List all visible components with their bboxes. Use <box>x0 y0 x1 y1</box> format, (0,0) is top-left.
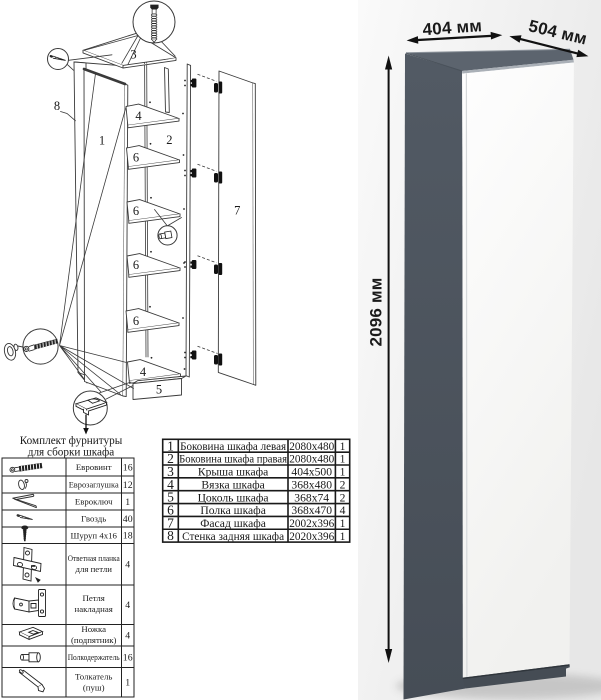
svg-text:Фасад шкафа: Фасад шкафа <box>200 517 266 530</box>
svg-text:2: 2 <box>340 491 346 504</box>
svg-text:1: 1 <box>340 453 346 466</box>
svg-text:40: 40 <box>123 514 133 525</box>
svg-text:1: 1 <box>340 530 346 543</box>
svg-text:4: 4 <box>125 560 130 571</box>
svg-text:накладная: накладная <box>75 604 113 614</box>
svg-text:Полка шкафа: Полка шкафа <box>200 504 266 517</box>
svg-text:8: 8 <box>167 528 174 543</box>
svg-text:4: 4 <box>125 600 130 611</box>
svg-text:2: 2 <box>340 478 346 491</box>
svg-text:Вязка шкафа: Вязка шкафа <box>201 478 264 491</box>
svg-text:18: 18 <box>123 531 133 542</box>
svg-text:Евроключ: Евроключ <box>75 497 113 507</box>
svg-text:3: 3 <box>130 47 136 61</box>
svg-text:Толкатель: Толкатель <box>75 672 112 682</box>
svg-text:4: 4 <box>140 365 147 379</box>
svg-text:Евровинт: Евровинт <box>76 462 112 472</box>
svg-text:8: 8 <box>54 99 60 113</box>
svg-text:Петля: Петля <box>83 593 105 603</box>
svg-text:(подпятник): (подпятник) <box>71 635 117 645</box>
svg-text:для петли: для петли <box>75 564 112 574</box>
svg-text:1: 1 <box>340 517 346 530</box>
svg-text:Боковина шкафа правая: Боковина шкафа правая <box>179 453 288 466</box>
svg-text:4: 4 <box>125 631 130 642</box>
svg-text:Боковина шкафа левая: Боковина шкафа левая <box>180 440 287 453</box>
svg-text:2002x396: 2002x396 <box>289 517 334 530</box>
svg-text:6: 6 <box>133 204 139 218</box>
svg-text:Полкодержатель: Полкодержатель <box>68 652 120 662</box>
svg-text:Ножка: Ножка <box>81 624 106 634</box>
svg-text:368x480: 368x480 <box>291 478 332 491</box>
svg-text:1: 1 <box>125 678 130 689</box>
svg-text:16: 16 <box>123 463 133 474</box>
svg-text:(пуш): (пуш) <box>83 683 105 693</box>
svg-text:2096 мм: 2096 мм <box>367 277 386 346</box>
svg-text:2080x480: 2080x480 <box>289 440 334 453</box>
svg-text:1: 1 <box>340 440 346 453</box>
svg-text:Шуруп 4x16: Шуруп 4x16 <box>70 530 117 540</box>
svg-text:2020x396: 2020x396 <box>289 530 334 543</box>
svg-text:5: 5 <box>156 382 162 396</box>
svg-text:2: 2 <box>166 133 172 147</box>
svg-text:6: 6 <box>133 314 139 328</box>
svg-text:Крыша шкафа: Крыша шкафа <box>198 466 268 479</box>
svg-text:12: 12 <box>123 480 133 491</box>
svg-text:4: 4 <box>135 109 142 123</box>
svg-text:Еврозаглушка: Еврозаглушка <box>69 480 119 490</box>
svg-text:7: 7 <box>234 203 240 217</box>
svg-text:1: 1 <box>99 133 105 147</box>
svg-text:368x74: 368x74 <box>294 491 329 504</box>
svg-text:1: 1 <box>340 466 346 479</box>
svg-text:368x470: 368x470 <box>291 504 332 517</box>
svg-text:Стенка задняя шкафа: Стенка задняя шкафа <box>182 530 284 543</box>
svg-text:6: 6 <box>133 150 139 164</box>
svg-text:16: 16 <box>123 653 133 664</box>
svg-text:6: 6 <box>133 258 139 272</box>
svg-text:Ответная планка: Ответная планка <box>68 553 120 563</box>
svg-text:4: 4 <box>340 504 346 517</box>
svg-text:Цоколь шкафа: Цоколь шкафа <box>198 491 269 504</box>
svg-text:404x500: 404x500 <box>291 466 332 479</box>
svg-text:Комплект фурнитуры: Комплект фурнитуры <box>20 435 123 447</box>
svg-text:1: 1 <box>125 497 130 508</box>
svg-text:2080x480: 2080x480 <box>289 453 334 466</box>
svg-text:для сборки шкафа: для сборки шкафа <box>28 447 115 459</box>
svg-text:Гвоздь: Гвоздь <box>81 514 106 524</box>
